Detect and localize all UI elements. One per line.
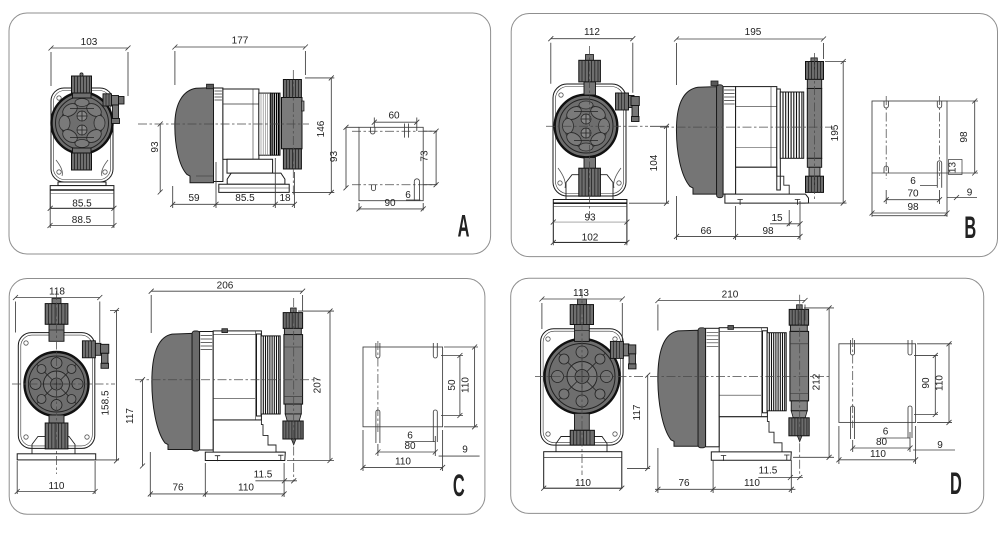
svg-text:103: 103 [81,37,98,48]
svg-text:66: 66 [700,226,712,237]
svg-text:76: 76 [172,482,184,493]
svg-text:60: 60 [388,111,400,122]
svg-text:207: 207 [313,376,324,393]
svg-text:85.5: 85.5 [72,198,92,209]
svg-text:6: 6 [407,431,413,442]
svg-text:D: D [950,466,962,501]
svg-text:70: 70 [907,189,919,200]
svg-text:113: 113 [573,288,589,299]
svg-text:9: 9 [462,445,468,456]
svg-text:90: 90 [921,377,932,389]
svg-text:11.5: 11.5 [759,466,778,477]
svg-text:9: 9 [937,440,943,451]
svg-text:C: C [453,468,465,503]
svg-text:158.5: 158.5 [101,390,112,415]
svg-text:195: 195 [745,27,762,38]
svg-text:206: 206 [217,281,234,292]
svg-text:98: 98 [762,226,774,237]
svg-text:B: B [964,210,976,245]
svg-text:112: 112 [584,27,600,38]
svg-text:85.5: 85.5 [235,193,255,204]
svg-text:9: 9 [967,188,973,199]
svg-text:93: 93 [150,141,161,153]
svg-text:210: 210 [722,290,739,301]
svg-text:102: 102 [582,233,599,244]
svg-text:15: 15 [771,213,783,224]
svg-text:90: 90 [384,198,396,209]
svg-text:110: 110 [461,377,472,393]
svg-text:98: 98 [907,202,919,213]
svg-text:93: 93 [584,212,596,223]
svg-text:76: 76 [678,478,690,489]
svg-text:6: 6 [883,427,889,438]
svg-text:110: 110 [395,456,411,467]
svg-text:110: 110 [870,449,886,460]
svg-text:59: 59 [188,193,200,204]
svg-text:80: 80 [404,441,416,452]
svg-text:117: 117 [125,408,136,424]
svg-text:118: 118 [49,287,65,298]
svg-text:110: 110 [49,481,65,492]
svg-text:73: 73 [420,150,431,162]
svg-text:18: 18 [279,193,291,204]
svg-text:13: 13 [948,162,959,174]
svg-text:110: 110 [575,478,591,489]
svg-text:177: 177 [232,36,249,47]
svg-text:11.5: 11.5 [254,470,273,481]
svg-text:104: 104 [649,154,660,171]
svg-text:A: A [458,209,470,244]
svg-text:195: 195 [830,124,841,141]
svg-text:110: 110 [744,478,760,489]
svg-text:110: 110 [238,482,254,493]
svg-text:146: 146 [316,120,327,137]
svg-text:212: 212 [812,373,823,390]
svg-text:110: 110 [935,375,946,391]
svg-text:80: 80 [876,437,888,448]
svg-text:117: 117 [632,404,643,420]
svg-text:98: 98 [959,131,970,143]
svg-text:50: 50 [447,379,458,391]
svg-text:93: 93 [329,151,340,163]
svg-text:88.5: 88.5 [72,215,92,226]
svg-text:6: 6 [910,176,916,187]
svg-text:6: 6 [405,190,411,201]
